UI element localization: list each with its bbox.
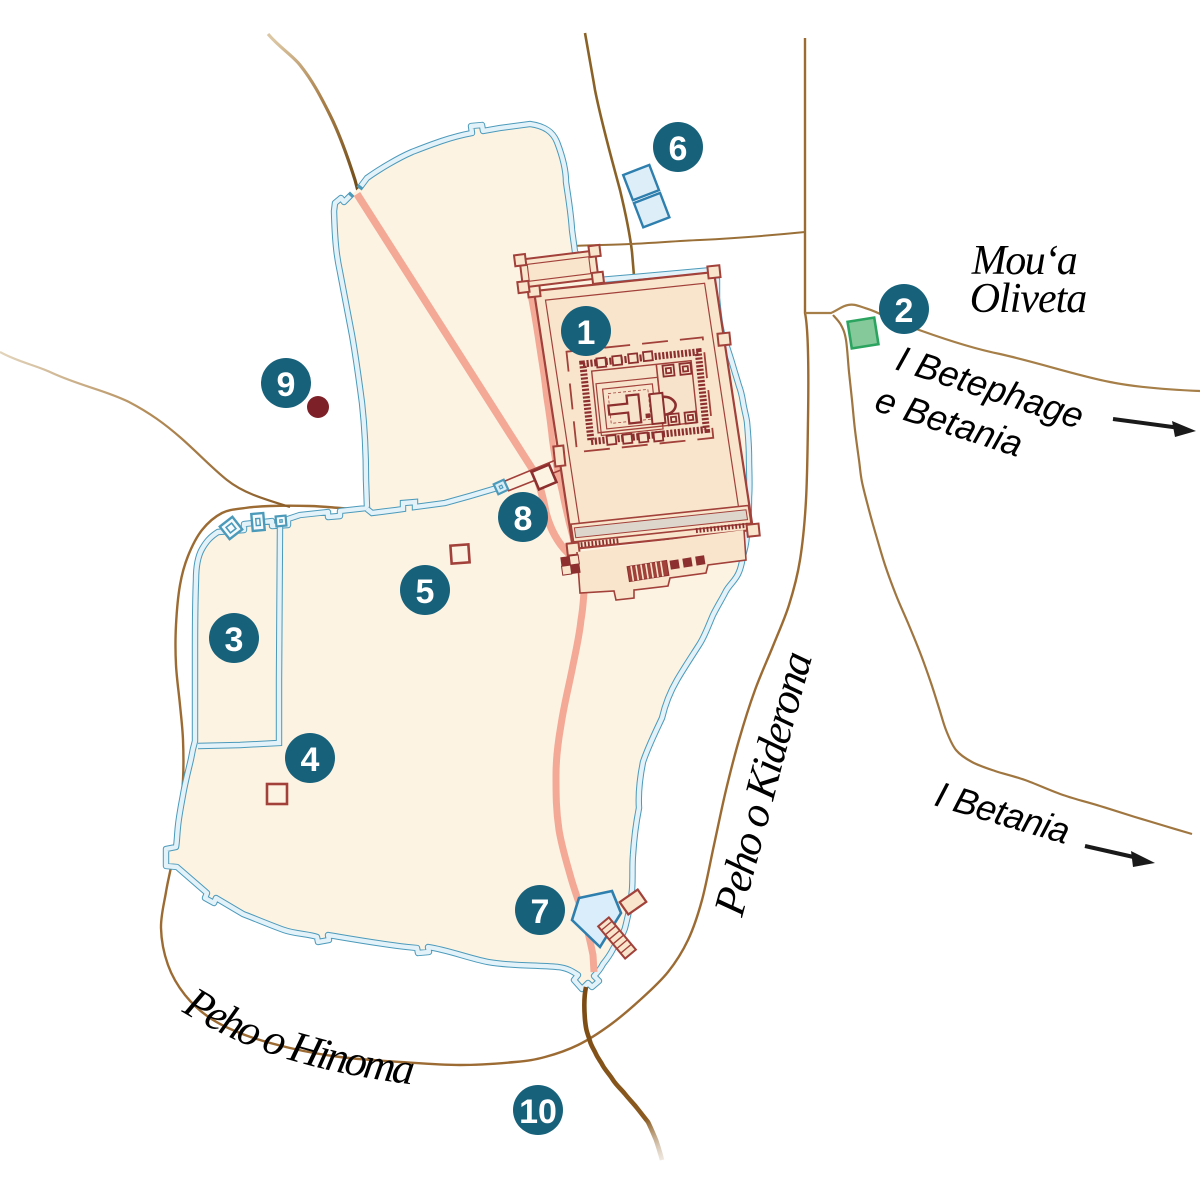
- svg-text:7: 7: [531, 893, 550, 931]
- svg-text:10: 10: [519, 1093, 557, 1131]
- svg-text:3: 3: [225, 621, 244, 659]
- svg-text:8: 8: [514, 500, 533, 538]
- svg-text:6: 6: [669, 130, 688, 168]
- svg-text:Oliveta: Oliveta: [970, 276, 1087, 322]
- svg-text:2: 2: [895, 292, 914, 330]
- svg-text:4: 4: [301, 741, 320, 779]
- svg-text:1: 1: [577, 314, 596, 352]
- svg-text:5: 5: [416, 573, 435, 611]
- svg-text:9: 9: [277, 366, 296, 404]
